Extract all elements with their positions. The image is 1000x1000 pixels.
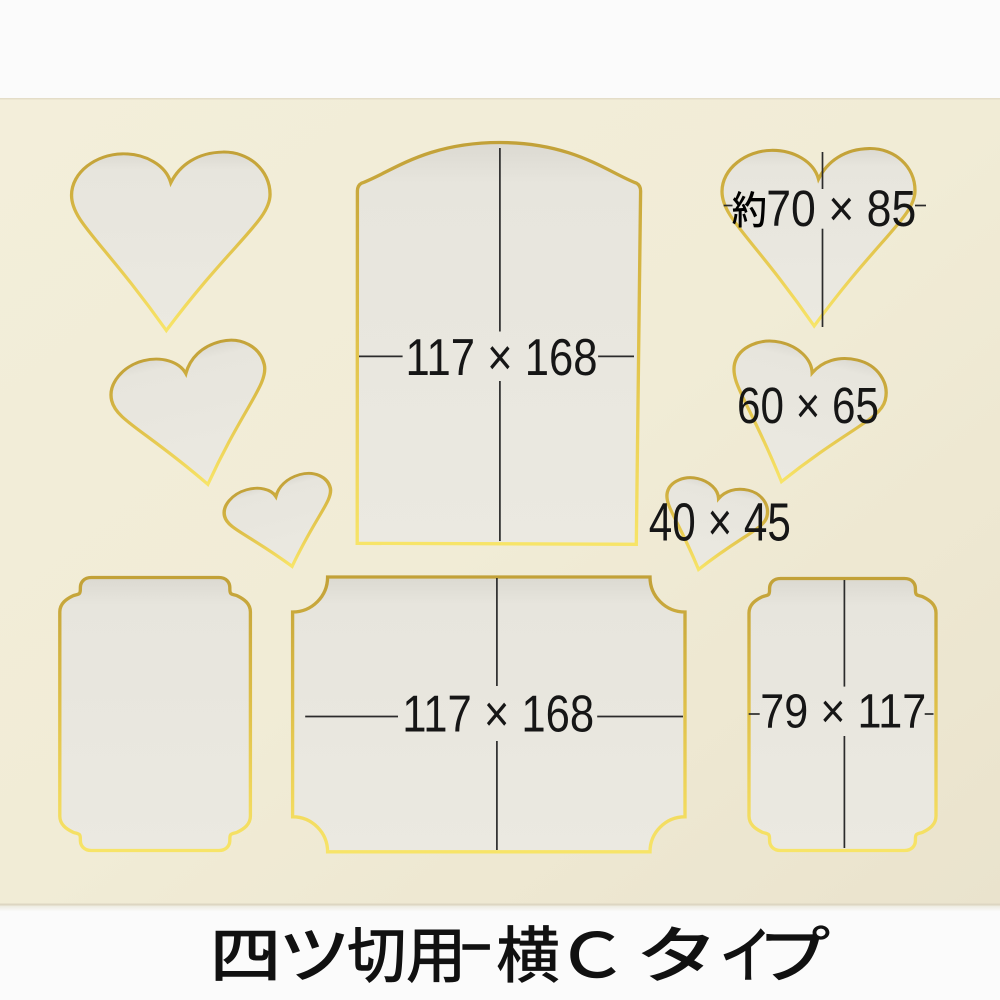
svg-text:117 × 168: 117 × 168	[406, 329, 598, 387]
svg-text:79 × 117: 79 × 117	[760, 685, 926, 738]
svg-text:70 × 85: 70 × 85	[766, 180, 916, 237]
svg-text:40 × 45: 40 × 45	[649, 493, 791, 553]
svg-text:60 × 65: 60 × 65	[737, 377, 879, 434]
svg-text:117 × 168: 117 × 168	[402, 686, 594, 744]
